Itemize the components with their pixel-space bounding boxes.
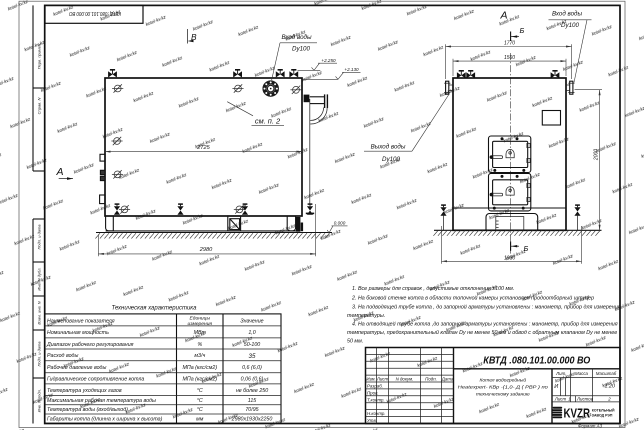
svg-text:Выход воды: Выход воды <box>371 143 406 150</box>
svg-text:2980: 2980 <box>199 247 213 253</box>
svg-text:мм: мм <box>196 417 204 423</box>
svg-text:35: 35 <box>249 353 256 360</box>
svg-text:КОТЕЛЬНЫЙ: КОТЕЛЬНЫЙ <box>592 409 615 413</box>
svg-text:Н.контр.: Н.контр. <box>367 411 386 416</box>
svg-text:Dy100: Dy100 <box>292 46 310 53</box>
svg-text:Диапазон рабочего регулировани: Диапазон рабочего регулирования <box>46 342 134 348</box>
svg-text:А: А <box>56 166 64 178</box>
svg-text:МПа (кгс/см2): МПа (кгс/см2) <box>182 365 217 371</box>
svg-text:Справ. N: Справ. N <box>37 98 42 115</box>
svg-text:0.000: 0.000 <box>334 220 346 225</box>
svg-text:1. Все размеры для справок ,: 1. Все размеры для справок , допустимые … <box>352 286 514 292</box>
svg-text:Dy100: Dy100 <box>382 156 400 163</box>
svg-text:Габариты котла (длинна х ширин: Габариты котла (длинна х ширина х высота… <box>47 417 163 423</box>
svg-text:50-100: 50-100 <box>244 342 261 348</box>
svg-text:КВТД .080.101.00.000 ВО: КВТД .080.101.00.000 ВО <box>69 10 121 16</box>
svg-text:2980х1930х2250: 2980х1930х2250 <box>231 417 273 423</box>
svg-text:Подп. и дата: Подп. и дата <box>37 224 42 250</box>
svg-text:Значение: Значение <box>240 318 263 324</box>
svg-text:Котел водогрейный: Котел водогрейный <box>480 377 527 384</box>
svg-text:Подп. и дата: Подп. и дата <box>37 341 42 367</box>
svg-text:%: % <box>197 342 202 348</box>
svg-text:температуры.: температуры. <box>347 313 385 319</box>
svg-text:Изм.: Изм. <box>366 377 375 382</box>
svg-text:Dy100: Dy100 <box>561 22 579 29</box>
svg-text:2725: 2725 <box>196 145 210 151</box>
svg-text:Единицы: Единицы <box>190 315 211 321</box>
svg-text:Т.контр.: Т.контр. <box>367 397 385 402</box>
svg-text:Инв. N дубл.: Инв. N дубл. <box>37 267 42 290</box>
svg-text:1560: 1560 <box>504 55 515 61</box>
svg-text:°С: °С <box>197 388 203 394</box>
svg-text:3. На подводящей трубе котла: 3. На подводящей трубе котла , до запорн… <box>352 304 621 311</box>
svg-text:МВт: МВт <box>194 330 207 336</box>
svg-text:Масштаб: Масштаб <box>596 371 617 376</box>
svg-text:Максимальная рабочая температу: Максимальная рабочая температура воды <box>47 398 156 404</box>
svg-text:°С: °С <box>197 398 203 404</box>
svg-text:1930: 1930 <box>504 255 515 261</box>
svg-text:В: В <box>191 32 197 42</box>
svg-text:N докум.: N докум. <box>396 377 414 382</box>
svg-text:не более 250: не более 250 <box>236 388 268 394</box>
svg-text:КВТД .080.101.00.000 ВО: КВТД .080.101.00.000 ВО <box>483 356 590 367</box>
svg-text:Б: Б <box>524 244 529 253</box>
svg-text:Дата: Дата <box>441 377 454 382</box>
svg-text:Температура уходящих газов: Температура уходящих газов <box>47 388 122 394</box>
svg-text:KVZR: KVZR <box>564 406 591 421</box>
svg-text:ЗАВОД РЭП: ЗАВОД РЭП <box>592 414 613 418</box>
svg-text:70/95: 70/95 <box>245 407 258 413</box>
svg-text:Масса: Масса <box>575 371 589 376</box>
svg-text:1:20: 1:20 <box>605 384 616 390</box>
svg-text:МПа (кгс/см2): МПа (кгс/см2) <box>182 377 217 383</box>
svg-text:Наименование показателя: Наименование показателя <box>47 318 115 324</box>
svg-text:Техническая характеристика: Техническая характеристика <box>112 306 198 312</box>
svg-text:°С: °С <box>197 407 203 413</box>
svg-text:А: А <box>500 10 508 22</box>
svg-text:Расход воды: Расход воды <box>47 353 78 359</box>
svg-text:Температура воды (вход/выход): Температура воды (вход/выход) <box>47 407 128 413</box>
svg-text:2000: 2000 <box>594 149 600 161</box>
svg-text:1770: 1770 <box>504 40 515 46</box>
svg-text:1,0: 1,0 <box>248 330 255 336</box>
svg-text:Утв.: Утв. <box>367 418 377 423</box>
svg-text:Б: Б <box>520 26 525 35</box>
svg-text:м3/ч: м3/ч <box>194 353 205 359</box>
svg-text:Лист: Лист <box>554 397 567 402</box>
svg-text:И: И <box>554 384 558 390</box>
svg-text:техническому заданию: техническому заданию <box>476 391 530 397</box>
svg-text:+2.250: +2.250 <box>321 58 336 63</box>
svg-text:Вход воды: Вход воды <box>281 34 311 41</box>
svg-text:температуры, предохранительный: температуры, предохранительный клапан Dy… <box>347 329 617 336</box>
svg-text:измерения: измерения <box>188 322 213 327</box>
svg-text:Пров.: Пров. <box>367 391 379 396</box>
svg-text:Инв. N подл.: Инв. N подл. <box>37 389 42 412</box>
svg-text:Лит.: Лит. <box>555 371 566 376</box>
svg-text:Вход воды: Вход воды <box>552 10 582 17</box>
svg-text:Лист: Лист <box>376 377 389 382</box>
svg-text:Номинальная мощность: Номинальная мощность <box>47 330 109 336</box>
svg-text:115: 115 <box>248 398 256 404</box>
svg-text:Подп.: Подп. <box>425 377 437 382</box>
svg-text:+2.130: +2.130 <box>344 67 359 72</box>
svg-text:Взам. инв. N: Взам. инв. N <box>37 301 42 324</box>
svg-text:Листов: Листов <box>576 397 594 402</box>
svg-text:50 мм.: 50 мм. <box>347 338 363 344</box>
svg-text:Разраб.: Разраб. <box>367 384 383 389</box>
svg-text:Формат А3: Формат А3 <box>578 424 603 429</box>
svg-text:Рабочее давление воды: Рабочее давление воды <box>47 365 106 371</box>
svg-text:см. п. 2: см. п. 2 <box>255 117 280 126</box>
svg-text:2: 2 <box>607 397 611 402</box>
svg-text:Перв. примен.: Перв. примен. <box>37 43 42 70</box>
svg-text:Гидравлическое сопротивление к: Гидравлическое сопротивление котла <box>47 377 144 383</box>
svg-text:0,06 (0,6): 0,06 (0,6) <box>241 377 264 383</box>
svg-text:0,6 (6,0): 0,6 (6,0) <box>242 365 262 371</box>
svg-text:4. На отводящей трубе котла ,: 4. На отводящей трубе котла ,до запорной… <box>352 321 618 328</box>
svg-text:Heatexpert- КВр -(1,0- Д ( РВР: Heatexpert- КВр -(1,0- Д ( РВР ) по <box>458 385 548 391</box>
svg-text:2. На боковой стенке котла в: 2. На боковой стенке котла в области топ… <box>351 294 594 301</box>
